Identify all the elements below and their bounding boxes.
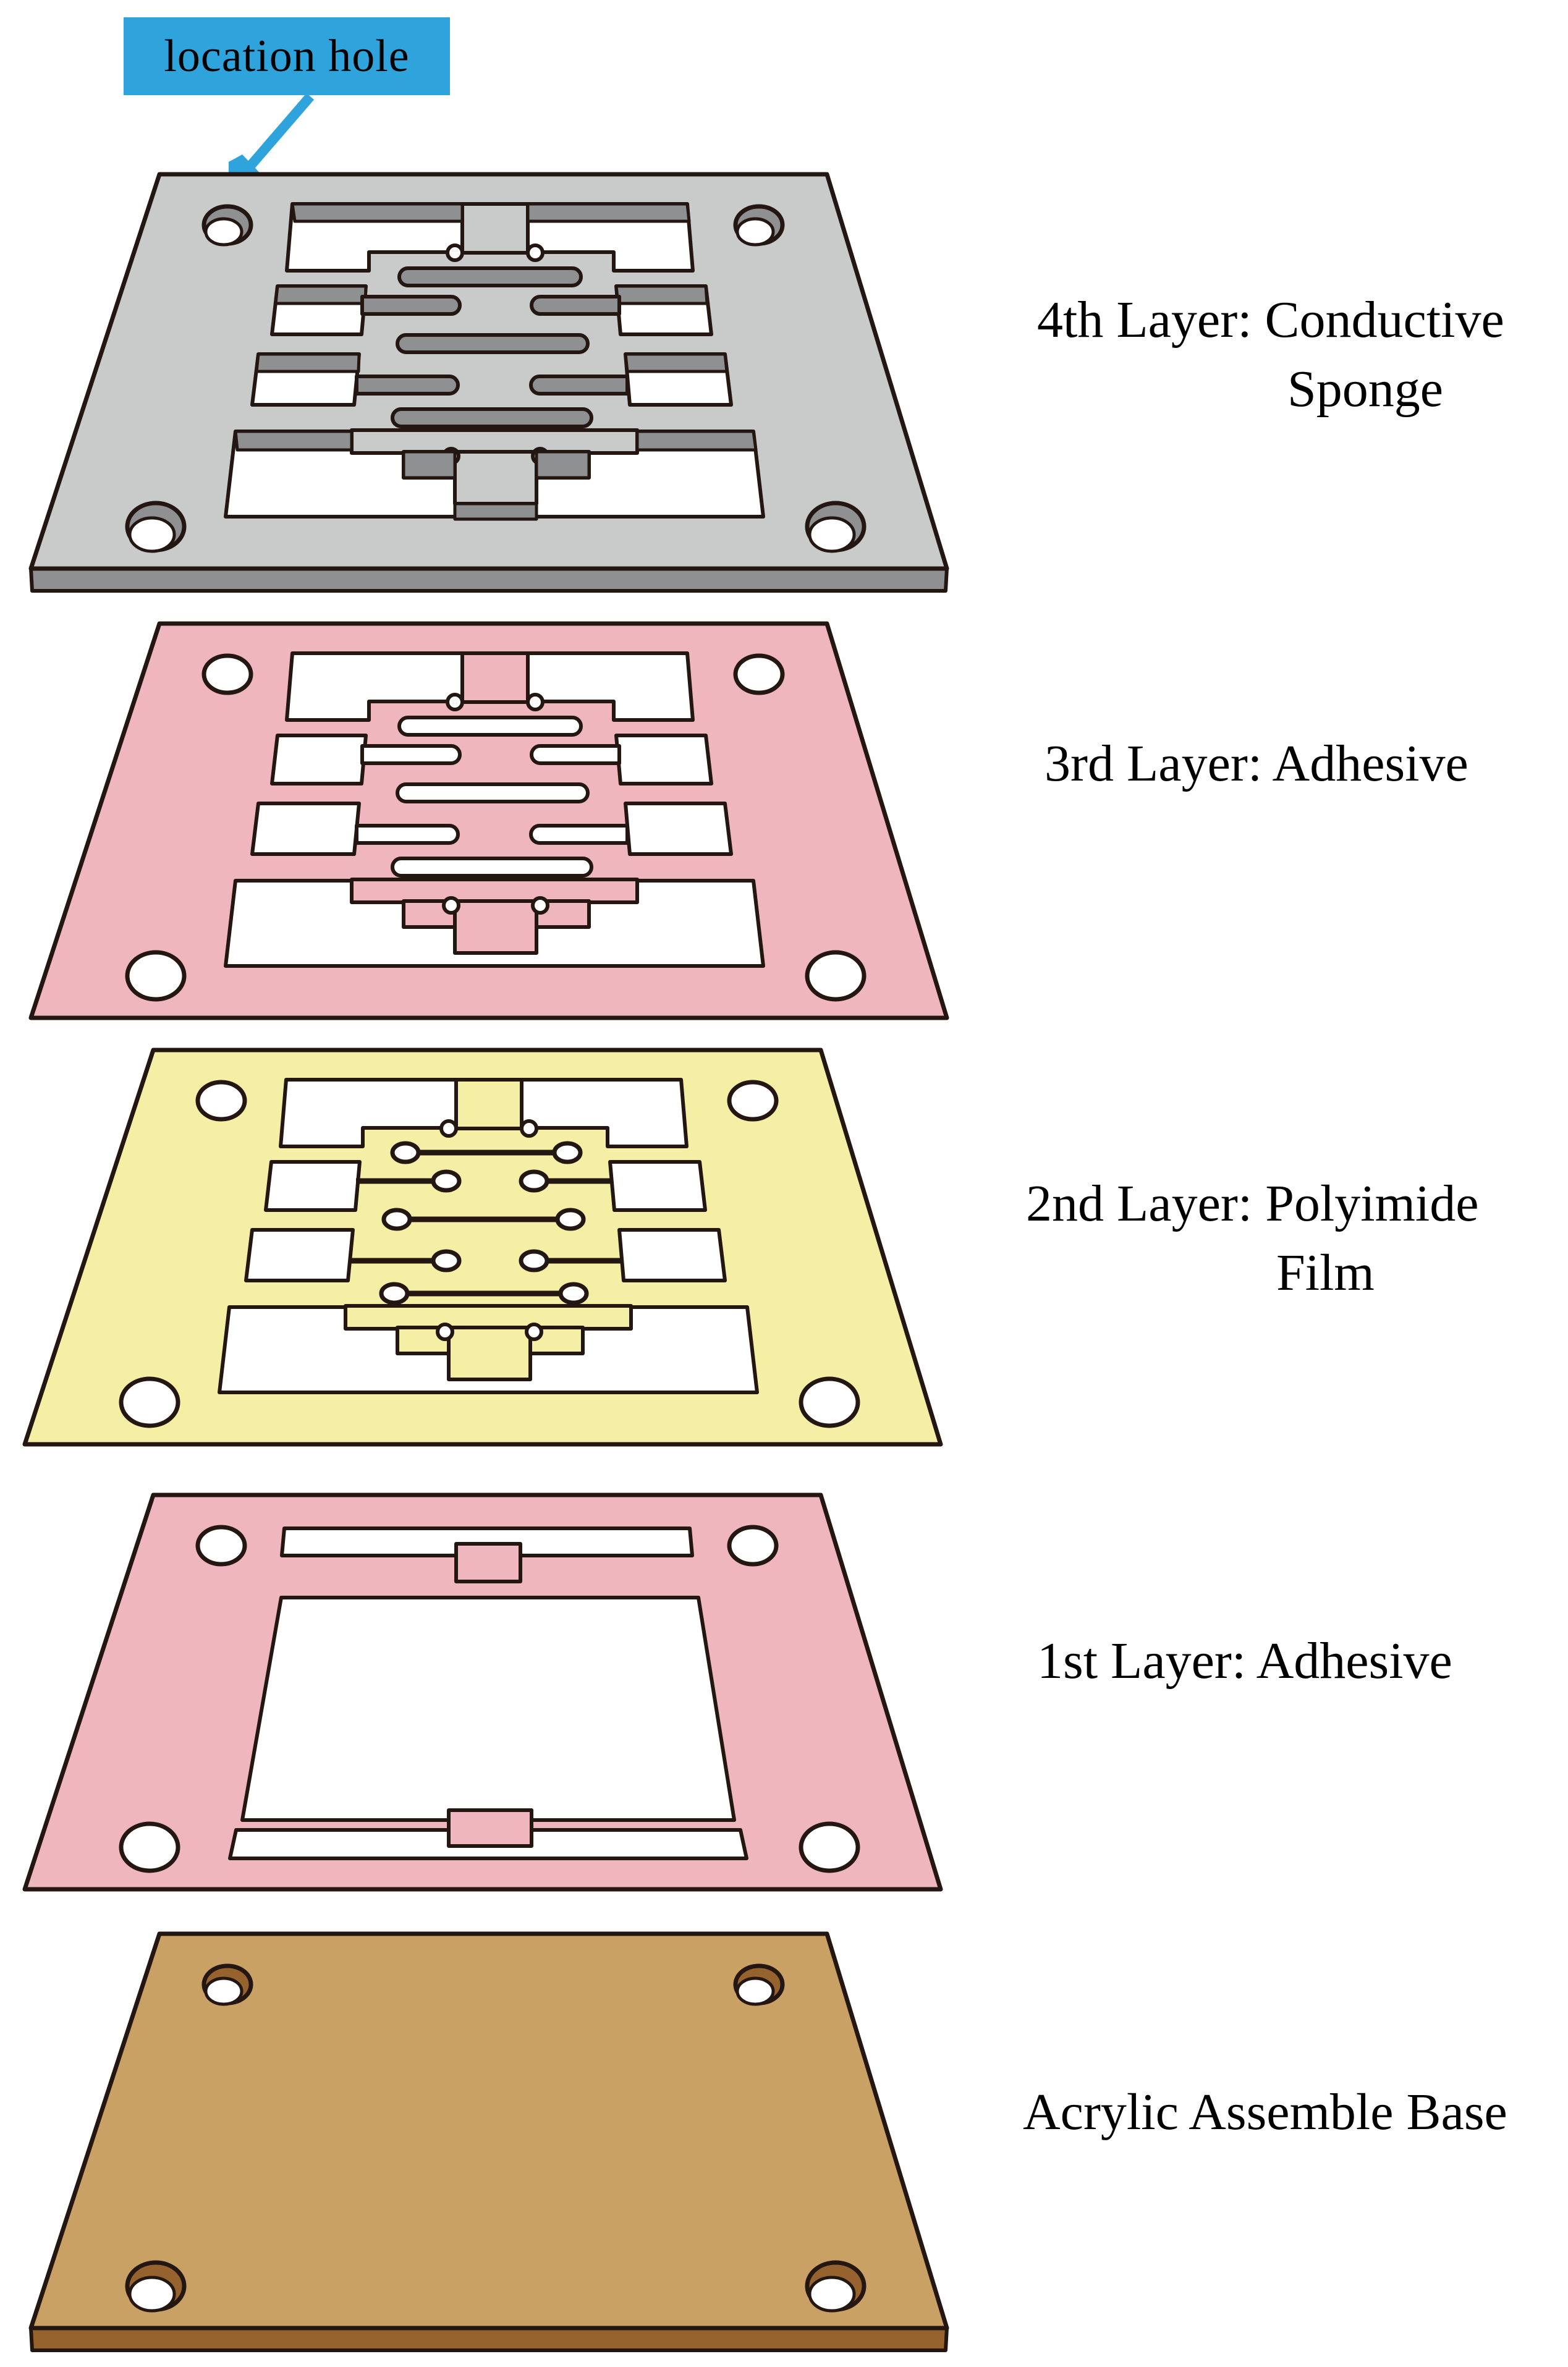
layer-3-label: 3rd Layer: Adhesive (1045, 729, 1468, 798)
location-hole-callout: location hole (124, 17, 450, 95)
layer-1-adhesive-plate (12, 1486, 964, 1937)
layer-4-conductive-sponge-plate (19, 166, 970, 617)
layer-2-label-line2: Film (1026, 1239, 1479, 1308)
layer-4-label-line1: 4th Layer: Conductive (1037, 286, 1504, 355)
base-label-line1: Acrylic Assemble Base (1023, 2078, 1507, 2147)
layer-4-label: 4th Layer: Conductive Sponge (1037, 286, 1504, 424)
layer-1-label: 1st Layer: Adhesive (1037, 1627, 1452, 1696)
acrylic-assemble-base-plate (19, 1925, 970, 2367)
layer-2-label: 2nd Layer: Polyimide Film (1026, 1169, 1479, 1308)
layer-1-label-line1: 1st Layer: Adhesive (1037, 1627, 1452, 1696)
layer-4-label-line2: Sponge (1037, 355, 1504, 424)
layer-3-label-line1: 3rd Layer: Adhesive (1045, 729, 1468, 798)
layer-3-adhesive-plate (19, 615, 970, 1066)
base-label: Acrylic Assemble Base (1023, 2078, 1507, 2147)
location-hole-callout-text: location hole (164, 30, 409, 83)
exploded-assembly-diagram: location hole (0, 0, 1568, 2367)
layer-2-polyimide-film-plate (12, 1041, 964, 1493)
layer-2-label-line1: 2nd Layer: Polyimide (1026, 1169, 1479, 1239)
